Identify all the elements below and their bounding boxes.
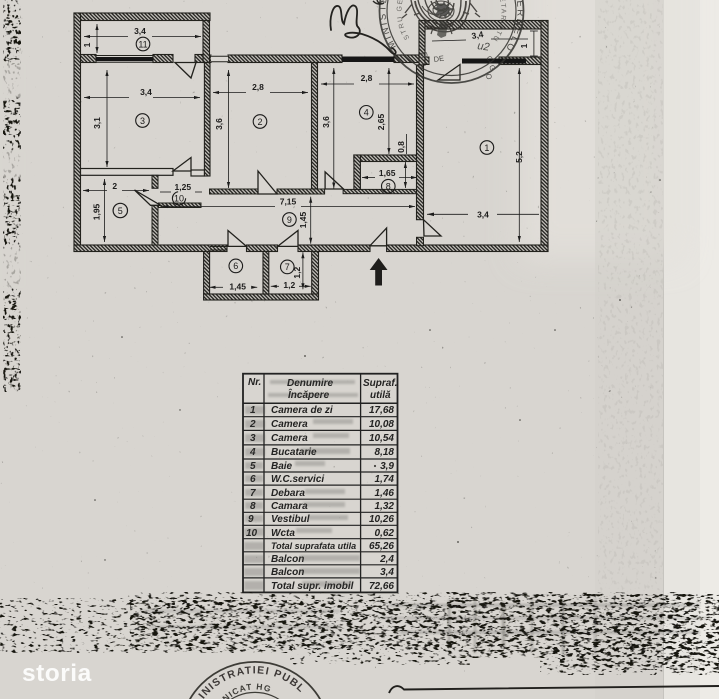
svg-text:storia: storia: [22, 660, 92, 687]
